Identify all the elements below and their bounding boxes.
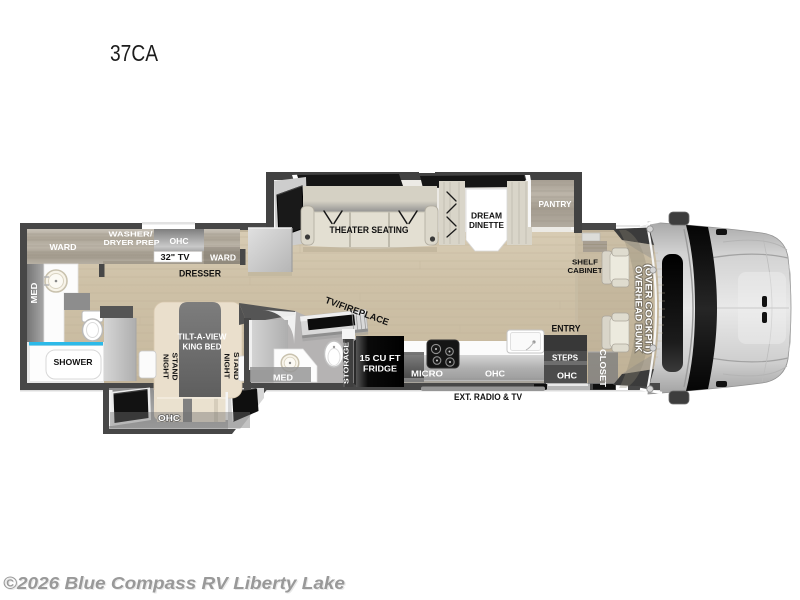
svg-text:KING BED: KING BED	[183, 343, 222, 352]
svg-text:DINETTE: DINETTE	[469, 220, 504, 230]
svg-text:MICRO: MICRO	[411, 369, 443, 379]
svg-text:CLOSET: CLOSET	[598, 349, 607, 387]
svg-text:STEPS: STEPS	[552, 353, 578, 363]
svg-text:OHC: OHC	[158, 413, 180, 423]
svg-text:THEATER SEATING: THEATER SEATING	[330, 225, 409, 235]
svg-text:OVERHEAD BUNK: OVERHEAD BUNK	[634, 266, 644, 353]
svg-text:DRESSER: DRESSER	[179, 269, 221, 279]
svg-text:MED: MED	[273, 373, 293, 383]
svg-text:STAND: STAND	[171, 353, 180, 382]
svg-text:WARD: WARD	[210, 253, 236, 263]
svg-text:EXT. RADIO & TV: EXT. RADIO & TV	[454, 392, 522, 402]
svg-text:37CA: 37CA	[110, 40, 158, 66]
svg-text:MED: MED	[30, 282, 39, 303]
svg-text:PANTRY: PANTRY	[539, 199, 572, 209]
svg-text:32" TV: 32" TV	[161, 252, 190, 262]
svg-text:ENTRY: ENTRY	[552, 324, 581, 334]
svg-text:SHOWER: SHOWER	[54, 357, 93, 367]
svg-text:(OVER COCKPIT): (OVER COCKPIT)	[644, 264, 654, 354]
svg-text:15 CU FT: 15 CU FT	[360, 353, 401, 363]
svg-text:OHC: OHC	[485, 369, 505, 379]
svg-text:WARD: WARD	[50, 242, 77, 252]
svg-text:DRYER PREP: DRYER PREP	[104, 238, 160, 247]
svg-text:©2026 Blue Compass RV Liberty: ©2026 Blue Compass RV Liberty Lake	[3, 573, 345, 593]
svg-text:OHC: OHC	[170, 237, 189, 246]
svg-text:TILT-A-VIEW: TILT-A-VIEW	[178, 333, 227, 342]
svg-text:NIGHT: NIGHT	[223, 354, 232, 379]
svg-text:DREAM: DREAM	[471, 211, 502, 221]
svg-text:OHC: OHC	[557, 371, 577, 381]
svg-text:CABINET: CABINET	[568, 266, 603, 275]
svg-text:FRIDGE: FRIDGE	[363, 364, 397, 374]
svg-text:STORAGE: STORAGE	[344, 342, 351, 384]
svg-text:NIGHT: NIGHT	[162, 354, 171, 379]
